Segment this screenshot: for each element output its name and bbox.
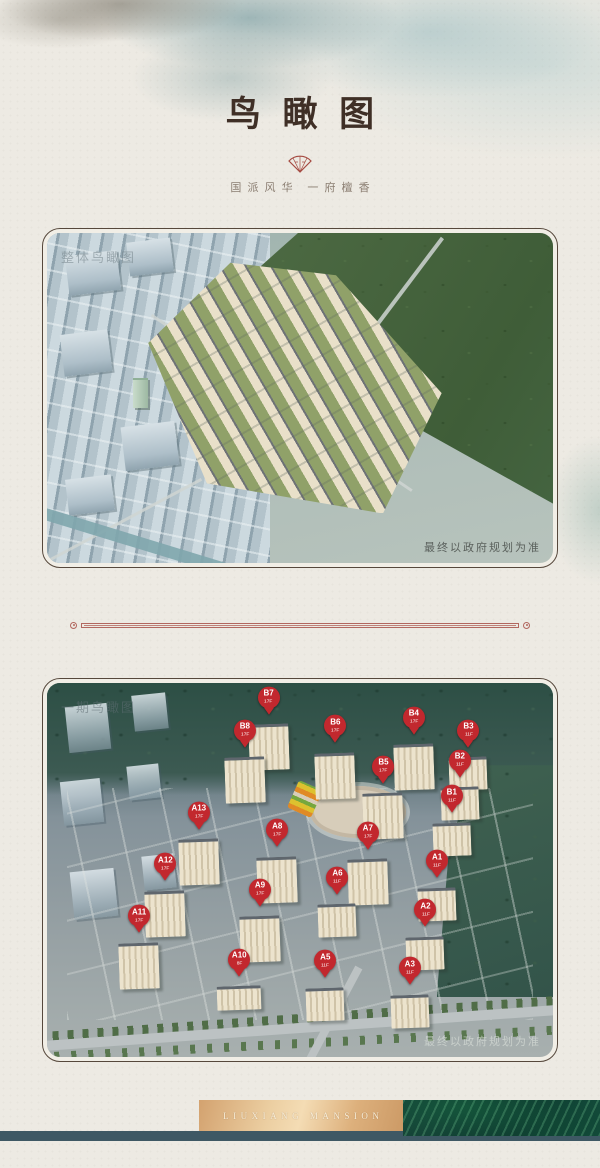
building-pin-A5: A511F	[313, 950, 337, 978]
pin-tail	[332, 888, 342, 895]
pin-code: B2	[455, 753, 465, 761]
building-tower-B6	[315, 752, 357, 799]
building-pin-B7: B717F	[257, 686, 281, 714]
pin-head: B311F	[457, 720, 479, 742]
pin-floors: 17F	[195, 815, 203, 820]
page-subtitle: 国派风华 一府檀香	[0, 179, 600, 195]
pin-tail	[264, 707, 274, 714]
pin-tail	[463, 741, 473, 748]
pin-head: A311F	[399, 957, 421, 979]
pin-code: A8	[272, 823, 282, 831]
pin-head: B617F	[324, 715, 346, 737]
pin-code: A9	[255, 882, 265, 890]
pin-code: A3	[405, 961, 415, 969]
pin-code: B6	[330, 718, 340, 726]
generic-building	[65, 475, 115, 516]
building-pin-A11: A1117F	[127, 905, 151, 933]
pin-tail	[320, 971, 330, 978]
pin-floors: 11F	[333, 880, 341, 885]
building-pin-A7: A717F	[356, 821, 380, 849]
pin-tail	[255, 899, 265, 906]
pin-floors: 11F	[422, 912, 430, 917]
building-tower-A11	[118, 942, 160, 989]
watermark: 整体鸟瞰图	[61, 247, 136, 266]
pin-tail	[420, 920, 430, 927]
building-pin-A8: A817F	[265, 819, 289, 847]
building-pin-B6: B617F	[323, 715, 347, 743]
brand-plaque: LIUXIANG MANSION	[199, 1100, 403, 1131]
pin-tail	[447, 806, 457, 813]
pin-layer: B717FB817FB617FB417FB311FB517FB211FB111F…	[47, 683, 553, 1057]
pin-code: B8	[240, 723, 250, 731]
pin-code: A1	[432, 853, 442, 861]
building-tower-A7	[347, 858, 389, 905]
overview-card: 整体鸟瞰图 最终以政府规划为准	[42, 228, 558, 568]
pin-head: A511F	[314, 950, 336, 972]
pin-head: B111F	[441, 785, 463, 807]
pin-floors: 17F	[161, 866, 169, 871]
building-tower-B8	[224, 757, 266, 804]
page-background: 鸟瞰图 国派风华 一府檀香 整体鸟瞰图 最终以政府规划	[0, 0, 600, 1168]
pin-code: B3	[463, 723, 473, 731]
pin-floors: 11F	[456, 762, 464, 767]
pin-floors: 17F	[410, 719, 418, 724]
pin-head: A611F	[326, 867, 348, 889]
divider-ornament-left	[70, 622, 77, 629]
pin-floors: 11F	[465, 733, 473, 738]
pin-floors: 17F	[364, 834, 372, 839]
pin-head: B817F	[234, 720, 256, 742]
pin-tail	[160, 874, 170, 881]
pin-code: B4	[409, 710, 419, 718]
pin-tail	[240, 741, 250, 748]
pin-floors: 11F	[448, 798, 456, 803]
pin-floors: 17F	[264, 699, 272, 704]
pin-floors: 11F	[433, 863, 441, 868]
pin-tail	[363, 842, 373, 849]
pin-code: A6	[332, 870, 342, 878]
building-tower-A13	[178, 839, 220, 886]
pin-floors: 17F	[331, 728, 339, 733]
pin-head: A1317F	[188, 801, 210, 823]
pin-floors: 8F	[236, 961, 242, 966]
pin-code: A5	[320, 953, 330, 961]
pin-floors: 17F	[256, 891, 264, 896]
pin-code: A13	[191, 805, 206, 813]
section-divider	[70, 620, 530, 630]
pin-head: A717F	[357, 821, 379, 843]
building-pin-A6: A611F	[325, 867, 349, 895]
building-tower-A5	[306, 987, 345, 1021]
building-pin-A2: A211F	[413, 899, 437, 927]
building-tower-A10	[217, 985, 262, 1011]
pin-head: B717F	[258, 686, 280, 708]
pin-code: B5	[378, 759, 388, 767]
building-pin-B5: B517F	[371, 755, 395, 783]
pin-head: A211F	[414, 899, 436, 921]
pin-tail	[405, 978, 415, 985]
building-pin-B1: B111F	[440, 785, 464, 813]
pin-tail	[378, 776, 388, 783]
generic-building	[60, 329, 113, 377]
building-pin-B2: B211F	[448, 749, 472, 777]
divider-bar	[81, 623, 519, 628]
pin-code: A10	[232, 952, 247, 960]
header: 鸟瞰图 国派风华 一府檀香	[0, 86, 600, 195]
building-pin-B3: B311F	[456, 720, 480, 748]
building-pin-B4: B417F	[402, 706, 426, 734]
building-pin-A12: A1217F	[153, 853, 177, 881]
pin-tail	[409, 727, 419, 734]
pin-head: A917F	[249, 878, 271, 900]
building-pin-A1: A111F	[425, 850, 449, 878]
pin-code: A11	[132, 908, 146, 916]
feather-artwork	[403, 1100, 600, 1136]
pin-tail	[194, 822, 204, 829]
pin-floors: 11F	[321, 963, 329, 968]
pin-code: B1	[447, 788, 457, 796]
pin-code: B7	[264, 690, 274, 698]
pin-tail	[234, 969, 244, 976]
building-tower-B4	[393, 743, 435, 790]
pin-head: A1217F	[154, 853, 176, 875]
building-tower-A3	[390, 994, 429, 1028]
divider-ornament-right	[523, 622, 530, 629]
phase-card: B717FB817FB617FB417FB311FB517FB211FB111F…	[42, 678, 558, 1062]
pin-tail	[330, 736, 340, 743]
pin-head: A108F	[228, 948, 250, 970]
pin-code: A2	[420, 902, 430, 910]
building-pin-A13: A1317F	[187, 801, 211, 829]
pin-tail	[272, 840, 282, 847]
pin-tail	[432, 871, 442, 878]
glass-tower	[133, 378, 148, 408]
pin-tail	[455, 770, 465, 777]
building-pin-A10: A108F	[227, 948, 251, 976]
building-pin-A3: A311F	[398, 957, 422, 985]
pin-head: B517F	[372, 755, 394, 777]
pin-code: A12	[158, 856, 173, 864]
pin-floors: 17F	[241, 733, 249, 738]
pin-tail	[134, 926, 144, 933]
pin-head: B211F	[449, 749, 471, 771]
pin-floors: 17F	[273, 832, 281, 837]
fan-seal-icon	[283, 153, 317, 173]
pin-head: B417F	[403, 706, 425, 728]
disclaimer: 最终以政府规划为准	[424, 539, 541, 555]
pin-head: A1117F	[128, 905, 150, 927]
building-tower-A6	[318, 904, 357, 938]
overview-image: 整体鸟瞰图 最终以政府规划为准	[47, 233, 553, 563]
phase-image: B717FB817FB617FB417FB311FB517FB211FB111F…	[47, 683, 553, 1057]
pin-floors: 17F	[379, 768, 387, 773]
brand-name: LIUXIANG MANSION	[219, 1111, 384, 1121]
pin-floors: 11F	[406, 970, 414, 975]
building-pin-B8: B817F	[233, 720, 257, 748]
pin-head: A817F	[266, 819, 288, 841]
generic-building	[120, 421, 179, 471]
watermark: 一期鸟瞰图	[61, 697, 136, 716]
page-title: 鸟瞰图	[0, 86, 600, 137]
building-pin-A9: A917F	[248, 878, 272, 906]
disclaimer: 最终以政府规划为准	[424, 1033, 541, 1049]
pin-code: A7	[363, 825, 373, 833]
pin-head: A111F	[426, 850, 448, 872]
pin-floors: 17F	[135, 918, 143, 923]
